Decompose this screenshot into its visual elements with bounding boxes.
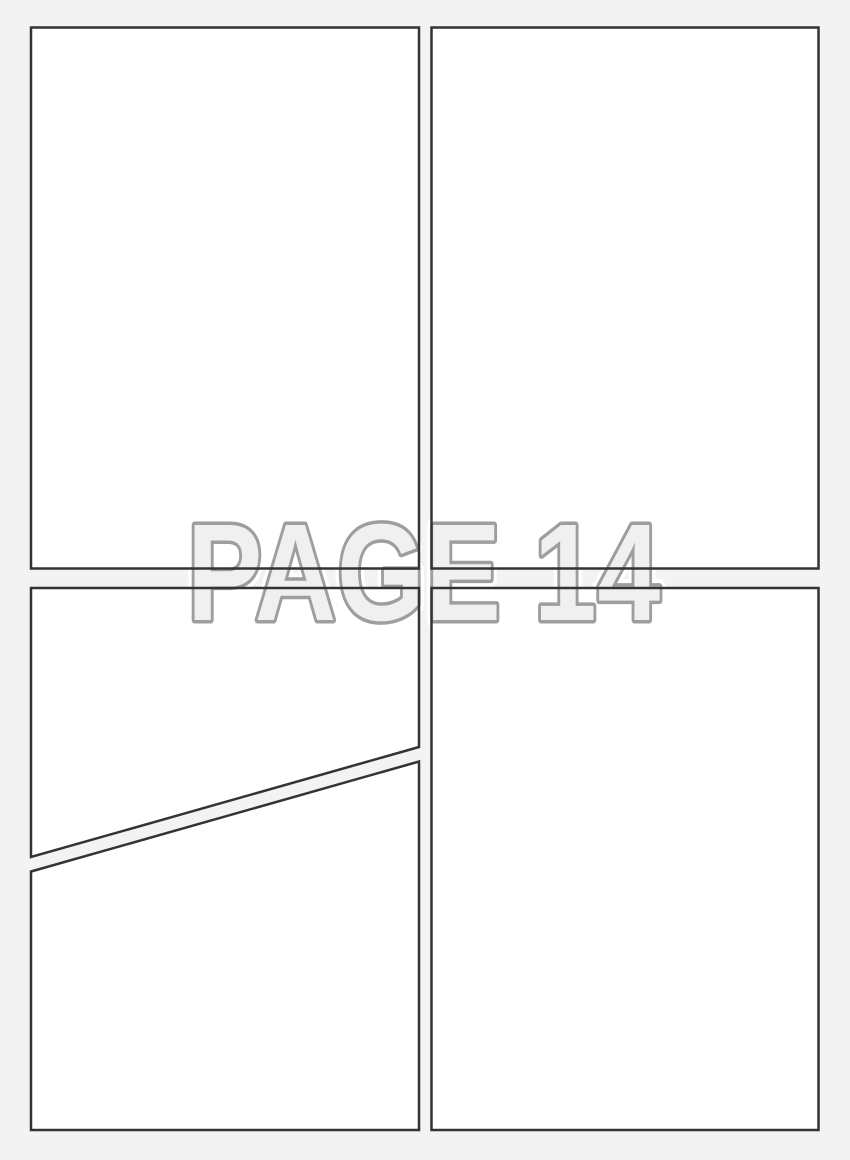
comic-page-template: PAGE 14 PAGE 14 [0,0,850,1160]
comic-page-canvas: PAGE 14 PAGE 14 [0,0,850,1160]
page-label-text: PAGE 14 [187,496,661,650]
page-label: PAGE 14 PAGE 14 [187,496,661,650]
panel-top-right [432,28,819,569]
panel-top-left [31,28,419,569]
panel-bottom-right [432,588,819,1130]
